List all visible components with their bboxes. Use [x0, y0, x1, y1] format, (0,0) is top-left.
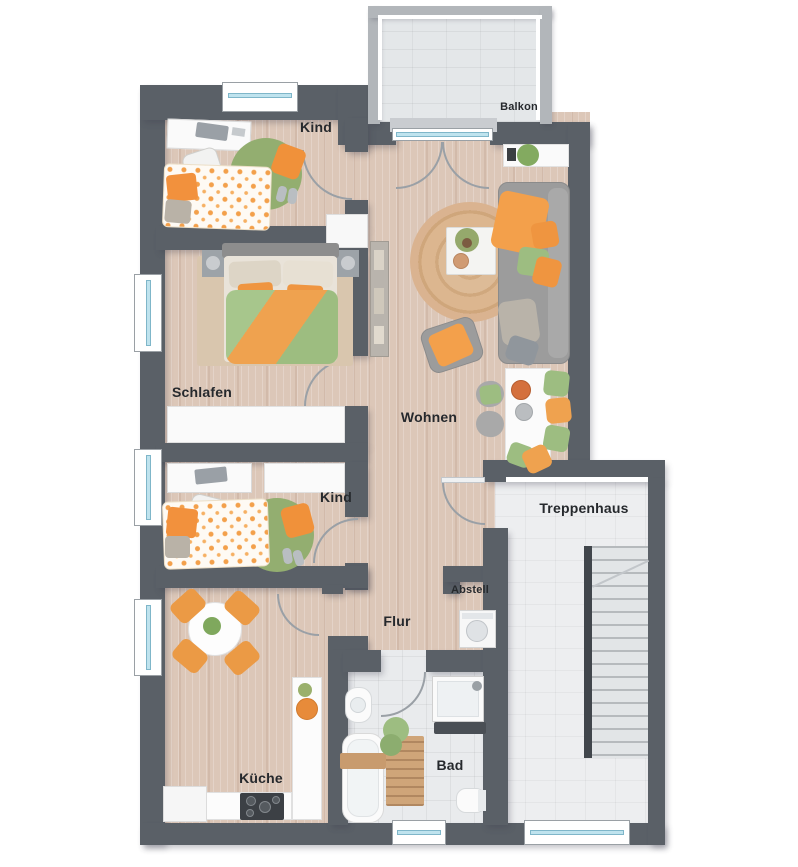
bad-bench	[434, 722, 486, 734]
wo-chair-green-1	[543, 370, 570, 397]
window-schlafen-left-glass	[146, 280, 151, 346]
bad-tub-caddy	[340, 753, 386, 769]
ku-table-plant	[203, 617, 221, 635]
wo-chair-cushion	[479, 384, 502, 406]
wall-treppenhaus-west	[483, 528, 508, 825]
balkon-trim-left	[378, 15, 382, 120]
ku-burner-4	[272, 796, 280, 804]
sch-lamp-left	[205, 255, 221, 271]
k2-pillow	[166, 507, 199, 539]
wo-shelf-books-1	[374, 250, 384, 270]
ab-washer-drum	[466, 620, 488, 642]
wall-bad-north-right	[426, 650, 483, 672]
room-label-kind-1: Kind	[300, 119, 332, 135]
wall-kueche-east-stub	[322, 585, 343, 594]
bad-sink-basin	[350, 697, 366, 713]
wo-sideboard-plant	[517, 144, 539, 166]
bad-tub-inner	[347, 739, 379, 817]
room-label-wohnen: Wohnen	[401, 409, 457, 425]
balkon-door-sill-glass	[396, 132, 489, 137]
ku-fridge	[163, 786, 207, 822]
wo-shelf-books-2	[374, 288, 384, 314]
wo-pillow-orange-1	[530, 220, 560, 250]
ku-burner-2	[246, 809, 254, 817]
k1-pillow	[166, 173, 199, 203]
wo-table-plant-pot	[462, 238, 472, 248]
wall-schlafen-kind2	[156, 443, 368, 462]
bad-towel-2	[380, 734, 402, 756]
window-bad-bottom-glass	[397, 830, 441, 835]
k1-pillow-2	[164, 199, 192, 224]
floorplan: Kind Schlafen Kind Wohnen Flur Abstell K…	[0, 0, 798, 867]
room-label-kind-2: Kind	[320, 489, 352, 505]
bad-toilet-tank	[478, 790, 486, 811]
ku-burner-1	[246, 796, 256, 806]
window-kind1-top-glass	[228, 93, 292, 98]
entry-door-leaf	[441, 477, 485, 483]
ab-washer-panel	[462, 613, 493, 619]
wall-balkon-east	[540, 6, 552, 124]
room-label-abstell: Abstell	[451, 584, 489, 596]
window-kueche-left-glass	[146, 605, 151, 670]
staircase-steps	[592, 546, 648, 758]
room-label-schlafen: Schlafen	[172, 384, 232, 400]
bad-shower-head	[472, 681, 482, 691]
staircase-rail	[584, 546, 592, 758]
room-label-kueche: Küche	[239, 770, 283, 786]
sch-lamp-right	[340, 255, 356, 271]
window-treppenhaus-bottom-glass	[530, 830, 624, 835]
wo-chair-orange-1	[545, 397, 572, 424]
wo-dining-bowl	[511, 380, 531, 400]
room-label-flur: Flur	[383, 613, 410, 629]
sch-wardrobe	[167, 406, 345, 443]
wo-sideboard-item	[507, 148, 516, 161]
k2-pillow-2	[165, 536, 190, 558]
wo-dining-vase	[515, 403, 533, 421]
ku-flowers	[298, 683, 312, 697]
ku-burner-3	[259, 801, 271, 813]
room-label-bad: Bad	[436, 757, 463, 773]
wall-schlafen-east-lower	[345, 406, 368, 446]
wall-kind1-east-upper	[345, 118, 368, 152]
wo-shelf-books-3	[374, 326, 384, 344]
wo-table-tray	[453, 253, 469, 269]
wall-abstell-north	[443, 566, 483, 582]
room-label-treppenhaus: Treppenhaus	[539, 500, 628, 516]
room-label-balkon: Balkon	[500, 101, 538, 113]
wall-outer-right	[568, 122, 590, 462]
balkon-trim-top	[378, 15, 542, 19]
wall-bad-north-left	[343, 650, 381, 672]
ku-fruit-bowl	[296, 698, 318, 720]
window-kind2-left-glass	[146, 455, 151, 520]
k1-desk-item	[232, 127, 246, 137]
sch-duvet	[226, 290, 338, 364]
wall-treppenhaus-east	[648, 478, 665, 845]
treppenhaus-top-trim	[506, 477, 648, 482]
